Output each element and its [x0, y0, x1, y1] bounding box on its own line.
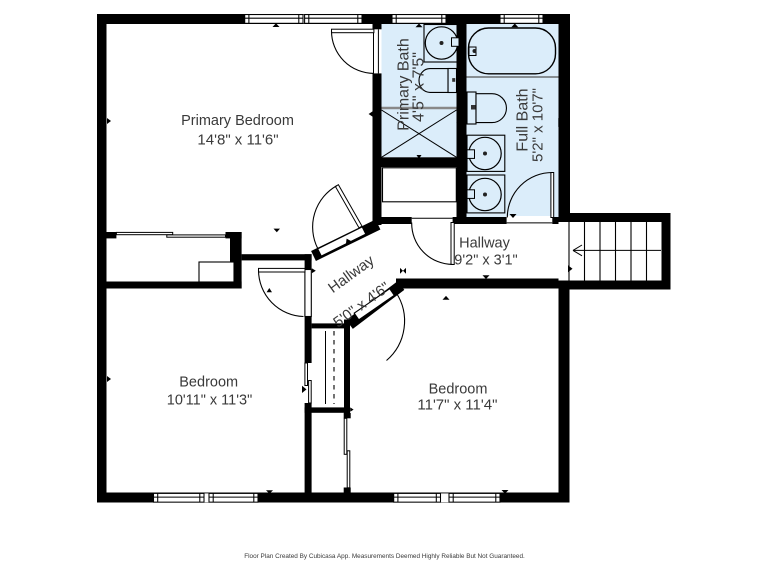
svg-text:10'11" x 11'3": 10'11" x 11'3": [167, 393, 252, 409]
svg-text:11'7" x 11'4": 11'7" x 11'4": [417, 397, 497, 414]
svg-text:Floor Plan Created By Cubicasa: Floor Plan Created By Cubicasa App. Meas…: [244, 553, 525, 560]
svg-text:4'5" x 7'5": 4'5" x 7'5": [410, 52, 427, 122]
svg-text:9'2" x 3'1": 9'2" x 3'1": [454, 253, 517, 269]
svg-text:Hallway: Hallway: [459, 236, 511, 252]
svg-text:Bedroom: Bedroom: [429, 382, 488, 398]
svg-text:Primary Bedroom: Primary Bedroom: [181, 113, 294, 129]
svg-text:14'8" x 11'6": 14'8" x 11'6": [197, 132, 278, 149]
svg-text:5'2" x 10'7": 5'2" x 10'7": [530, 88, 547, 162]
svg-text:Bedroom: Bedroom: [179, 375, 238, 391]
